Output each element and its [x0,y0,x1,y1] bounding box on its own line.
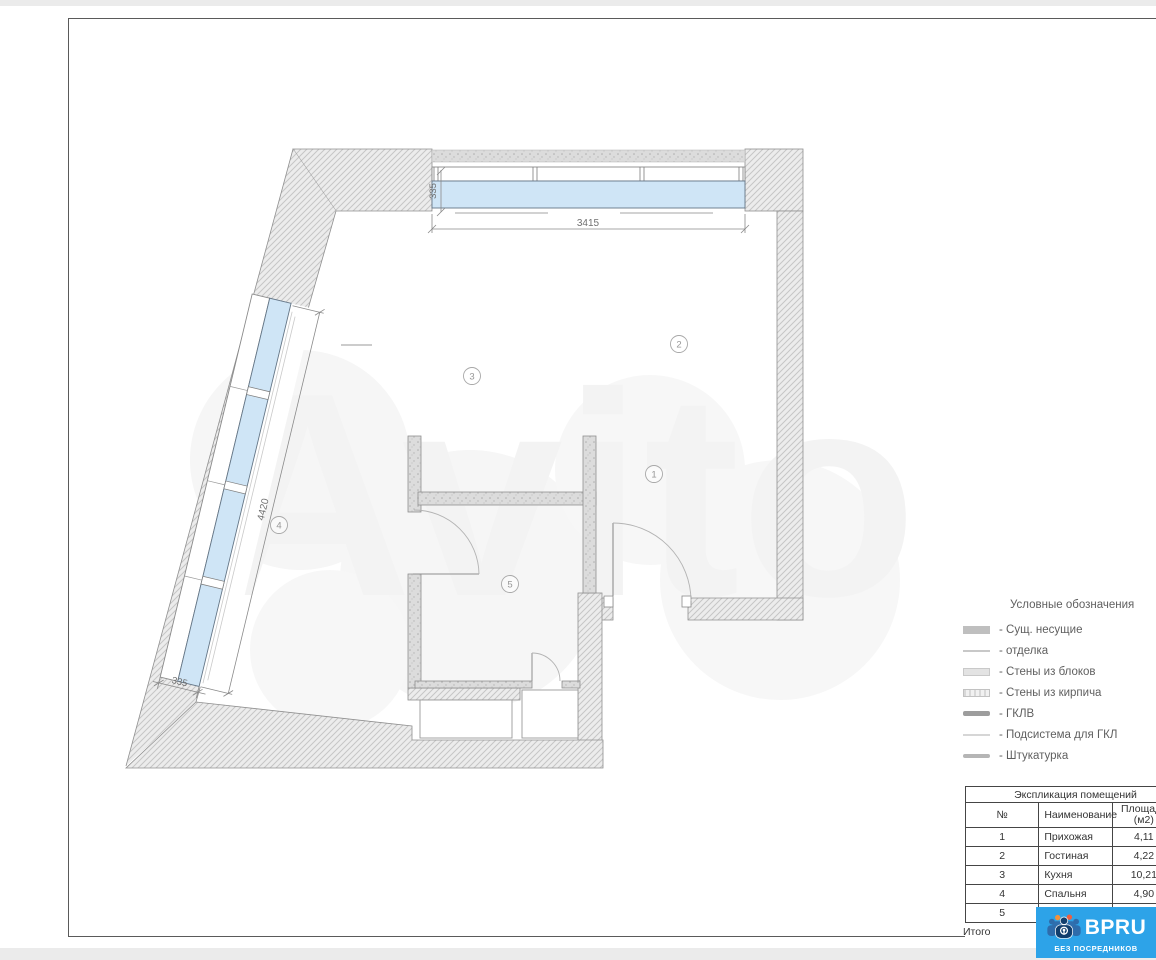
wall-bath-top [418,492,596,505]
wall-bath-bottom-b [562,681,580,688]
legend-item: - Стены из кирпича [963,682,1156,703]
duct-box-left [420,700,512,738]
svg-text:2: 2 [676,340,681,351]
brand-tagline: БЕЗ ПОСРЕДНИКОВ [1054,944,1137,953]
duct-box-right [522,690,578,738]
bpru-logo: BPRU БЕЗ ПОСРЕДНИКОВ [1036,907,1156,958]
col-header-area: Площадь (м2) [1112,803,1156,828]
swatch-finish-icon [963,650,990,652]
swatch-gkl-subsystem-icon [963,734,990,736]
brand-name: BPRU [1085,917,1147,938]
table-row: 2 Гостиная 4,22 [966,847,1156,866]
table-title-row: Экспликация помещений [966,787,1156,803]
room-label-2: 2 [671,336,688,353]
legend-item: - Штукатурка [963,745,1156,766]
explication-table: Экспликация помещений № Наименование Пло… [965,786,1156,923]
swatch-bearing-icon [963,626,990,634]
swatch-plaster-icon [963,754,990,758]
swatch-brick-walls-icon [963,689,990,697]
table-header-row: № Наименование Площадь (м2) [966,803,1156,828]
wall-bottom-right [688,598,803,620]
svg-text:1: 1 [651,470,656,481]
legend-item: - ГКЛВ [963,703,1156,724]
bpru-people-icon [1046,913,1082,942]
avito-watermark: Avito [190,333,917,730]
wall-bath-bottom-a [415,681,532,688]
legend-item: - Подсистема для ГКЛ [963,724,1156,745]
room-label-3: 3 [464,368,481,385]
window-top [432,150,745,213]
svg-text:3415: 3415 [577,218,600,229]
swatch-block-walls-icon [963,668,990,676]
wall-bath-bottom-strip [408,688,520,700]
wall-hall-left [583,436,596,593]
room-label-1: 1 [646,466,663,483]
wall-bath-left-lower [408,574,421,688]
svg-text:335: 335 [428,183,439,199]
table-row: 4 Спальня 4,90 [966,885,1156,904]
table-title: Экспликация помещений [966,787,1156,803]
window-top-frame [432,167,745,181]
svg-text:5: 5 [507,580,512,591]
screenshot-canvas: Avito [0,0,1156,960]
table-row: 3 Кухня 10,21 [966,866,1156,885]
window-top-facade [432,150,745,162]
legend-item: - отделка [963,640,1156,661]
wall-bath-right [578,593,602,745]
legend: Условные обозначения - Сущ. несущие - от… [963,599,1156,766]
legend-item: - Сущ. несущие [963,619,1156,640]
col-header-name: Наименование [1039,803,1112,828]
wall-top-right-block [745,149,803,211]
dim-top-width: 3415 [428,214,749,233]
col-header-num: № [966,803,1039,828]
window-top-glazing [432,181,745,208]
room-label-5: 5 [502,576,519,593]
table-row: 1 Прихожая 4,11 [966,828,1156,847]
legend-title: Условные обозначения [1010,599,1156,611]
swatch-gklv-icon [963,711,990,716]
wall-right [777,211,803,620]
room-label-4: 4 [271,517,288,534]
svg-text:4: 4 [276,521,281,532]
svg-text:3: 3 [469,372,474,383]
legend-item: - Стены из блоков [963,661,1156,682]
